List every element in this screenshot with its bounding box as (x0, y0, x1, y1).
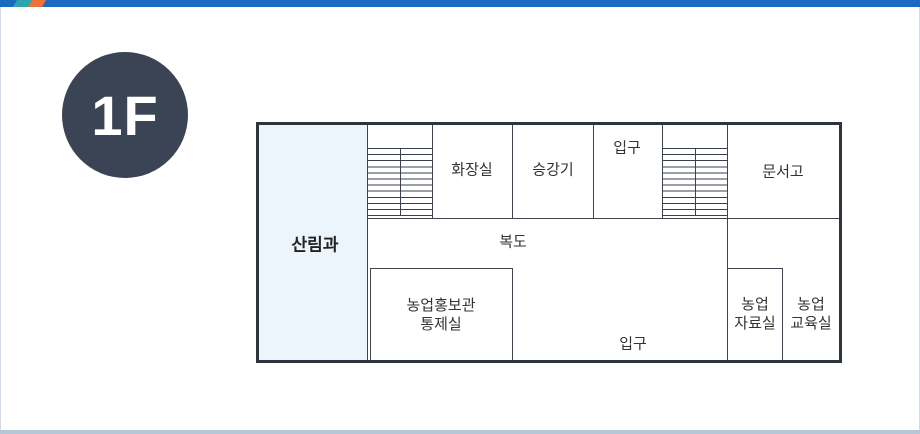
room-label-ag-edu: 농업 교육실 (790, 295, 831, 333)
room-label-restroom: 화장실 (451, 161, 492, 180)
label-corridor: 복도 (499, 233, 527, 252)
room-label-pr-control-line2: 통제실 (420, 316, 461, 333)
floor-plan-inner: 산림과 화장실 승강기 입구 문서고 복도 농업홍보관 통제실 입구 농업 자료… (259, 125, 839, 360)
bottom-accent-bar (0, 430, 920, 434)
room-label-ag-edu-line2: 교육실 (790, 315, 831, 332)
plan-line (367, 218, 839, 219)
room-label-pr-control-line1: 농업홍보관 (406, 297, 475, 314)
room-label-ag-data-line2: 자료실 (734, 315, 775, 332)
room-label-ag-data: 농업 자료실 (734, 295, 775, 333)
top-accent-bar (0, 0, 920, 7)
plan-line (432, 125, 433, 218)
label-entrance-top: 입구 (613, 139, 641, 158)
orange-stripe (28, 0, 46, 7)
room-label-ag-data-line1: 농업 (741, 296, 769, 313)
plan-line (593, 125, 594, 218)
plan-line (512, 125, 513, 218)
label-entrance-bottom: 입구 (619, 335, 647, 354)
staircase-left-icon (368, 148, 432, 216)
staircase-right-icon (663, 148, 727, 216)
floor-plan: 산림과 화장실 승강기 입구 문서고 복도 농업홍보관 통제실 입구 농업 자료… (256, 122, 842, 363)
room-label-archive: 문서고 (762, 163, 803, 182)
floor-badge-label: 1F (91, 83, 158, 148)
floor-guide-page: 1F 산림과 화장실 승강기 입구 문서고 복도 (0, 0, 920, 434)
room-label-pr-control: 농업홍보관 통제실 (406, 296, 475, 334)
room-label-forestry: 산림과 (292, 236, 339, 255)
room-label-elevator: 승강기 (532, 161, 573, 180)
room-label-ag-edu-line1: 농업 (797, 296, 825, 313)
floor-badge: 1F (62, 52, 188, 178)
